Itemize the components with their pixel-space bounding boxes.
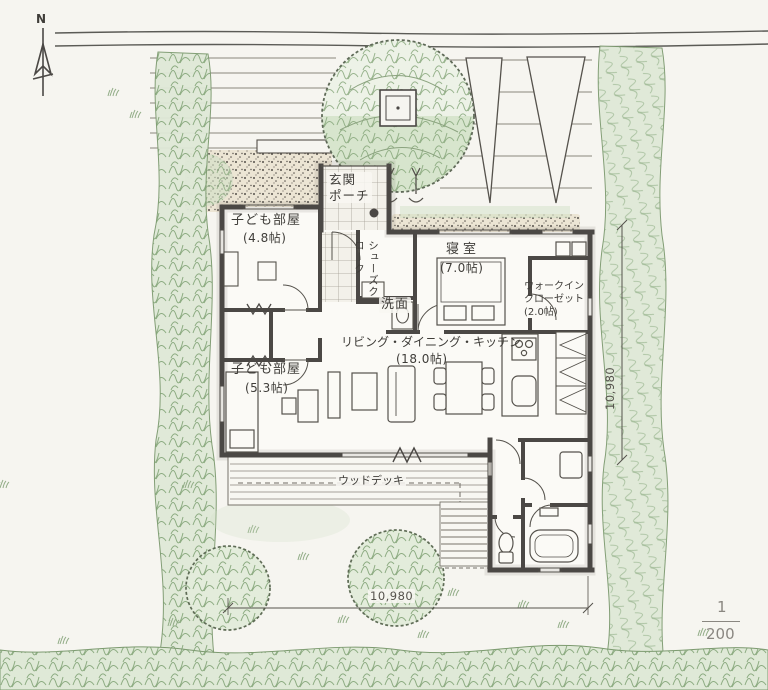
kitchen-pantry (556, 332, 586, 414)
washroom-vanity (392, 302, 413, 329)
kitchen-counter (502, 334, 538, 416)
site-floor-plan: N 玄関 ポーチ シューズクローク 子ども部屋 (4.8帖) 寝室 (7.0帖)… (0, 0, 768, 690)
symbol-shrub-round-2 (348, 530, 444, 626)
hedge-bottom (0, 645, 768, 690)
symbol-shrub-round-1 (186, 546, 270, 630)
wood-deck (228, 457, 490, 505)
parking-space-markers (466, 57, 585, 203)
floor-plan-drawing (0, 0, 768, 690)
north-arrow (33, 28, 53, 96)
hedge-right (598, 46, 668, 662)
exterior-steps (438, 502, 492, 568)
shoe-closet-shelf (362, 282, 384, 298)
